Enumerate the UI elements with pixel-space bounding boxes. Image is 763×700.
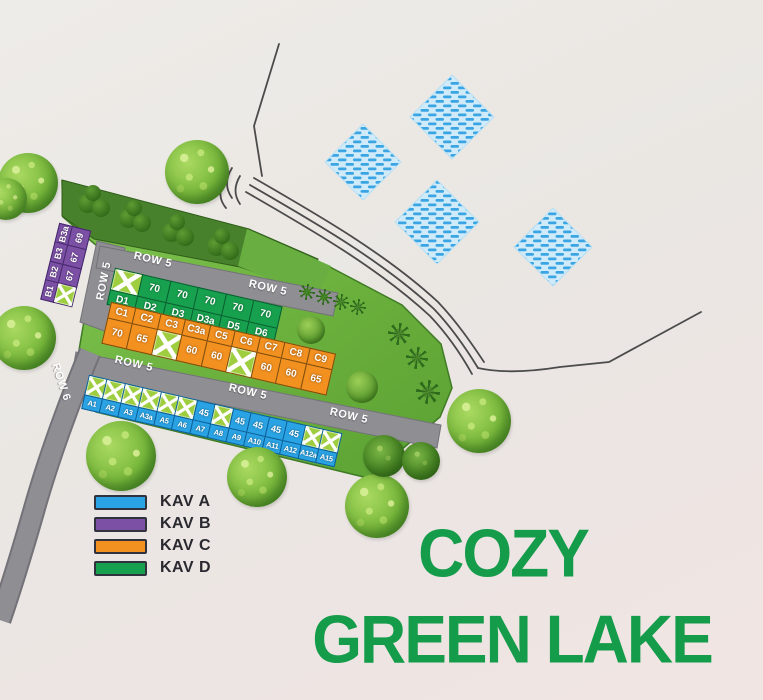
legend-swatch-kav-b [94, 517, 147, 532]
road-row6-surface [0, 352, 90, 620]
bush-icon [133, 214, 151, 232]
legend-swatch-kav-c [94, 539, 147, 554]
title-line-2: GREEN LAKE [272, 600, 752, 678]
legend-label: KAV D [160, 559, 211, 577]
legend-row: KAV A [94, 491, 211, 513]
bush-icon [85, 185, 101, 201]
bush-icon [176, 228, 194, 246]
bush-icon [346, 371, 378, 403]
legend-row: KAV C [94, 535, 211, 557]
legend-row: KAV B [94, 513, 211, 535]
palm-icon [333, 294, 349, 310]
palm-icon [388, 323, 410, 345]
lake-icon [410, 75, 494, 159]
legend-label: KAV A [160, 493, 211, 511]
sold-x-icon [54, 283, 76, 306]
tree-icon [363, 435, 405, 477]
legend-label: KAV B [160, 515, 211, 533]
map-background [0, 0, 763, 700]
bush-icon [214, 228, 230, 244]
tree-icon [86, 421, 156, 491]
title-line-1: COZY [408, 514, 598, 592]
tree-icon [345, 474, 409, 538]
tree-icon [165, 140, 229, 204]
lot-size-text: 67 [64, 270, 76, 282]
tree-icon [227, 447, 287, 507]
lot-size: 65 [301, 363, 331, 394]
legend-row: KAV D [94, 557, 211, 579]
palm-icon [316, 289, 332, 305]
palm-icon [406, 347, 428, 369]
lot-size-text: 67 [68, 251, 80, 263]
lot-size-text: 69 [73, 232, 85, 244]
lake-icon [514, 208, 592, 286]
legend: KAV AKAV BKAV CKAV D [94, 491, 211, 579]
legend-label: KAV C [160, 537, 211, 555]
bush-icon [92, 199, 110, 217]
lot-name: A15 [316, 448, 337, 466]
site-plan-canvas: ROW 5 ROW 5 ROW 5 ROW 5 ROW 5 ROW 5 ROW … [0, 0, 763, 700]
palm-icon [299, 284, 315, 300]
bush-icon [297, 316, 325, 344]
tree-icon [447, 389, 511, 453]
legend-swatch-kav-d [94, 561, 147, 576]
legend-swatch-kav-a [94, 495, 147, 510]
palm-icon [350, 299, 366, 315]
tree-icon [402, 442, 440, 480]
lake-icon [325, 124, 401, 200]
bush-icon [169, 214, 185, 230]
lake-icon [395, 180, 479, 264]
bush-icon [221, 242, 239, 260]
bush-icon [126, 200, 142, 216]
palm-icon [416, 380, 440, 404]
